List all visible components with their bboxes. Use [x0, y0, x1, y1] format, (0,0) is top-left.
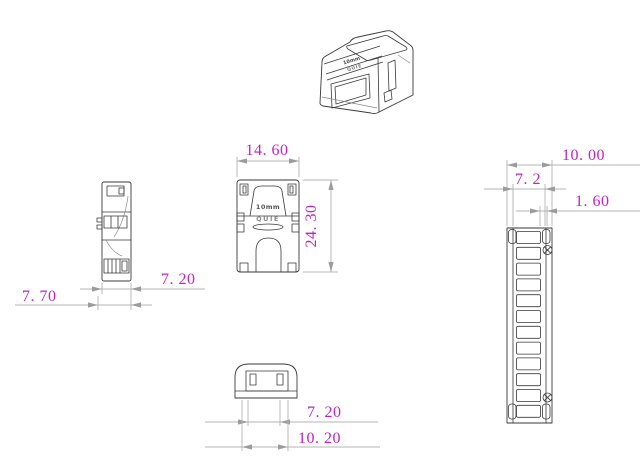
- dimension-strip-inner-width: 7. 2: [484, 171, 566, 226]
- view-bottom: 7. 20 10. 20: [205, 364, 380, 451]
- dimension-front-height: 24. 30: [303, 180, 338, 272]
- front-body: [237, 180, 299, 272]
- view-side: 7. 20 7. 70: [15, 182, 205, 310]
- dimension-bottom-outer-width: 10. 20: [205, 400, 380, 451]
- dimension-label-strip-inner-width: 7. 2: [515, 171, 541, 188]
- front-brand-marking: QUIE: [256, 215, 280, 223]
- drawing-canvas: 10mm QUIE 7. 20: [0, 0, 644, 469]
- dimension-bottom-inner-width: 7. 20: [205, 400, 378, 426]
- dimension-label-strip-outer-width: 10. 00: [562, 147, 605, 164]
- view-front: 10mm QUIE 14. 60 24. 30: [237, 142, 338, 272]
- front-size-marking: 10mm: [256, 203, 280, 211]
- side-protrusion: [97, 218, 102, 222]
- dimension-label-bottom-inner-width: 7. 20: [307, 404, 342, 421]
- dimension-label-bottom-outer-width: 10. 20: [298, 430, 341, 447]
- view-strip: 10. 00 7. 2 1. 60: [484, 147, 640, 423]
- dimension-label-strip-rail-width: 1. 60: [575, 193, 610, 210]
- dimension-front-width: 14. 60: [237, 142, 299, 177]
- dimension-label-front-width: 14. 60: [246, 142, 289, 159]
- dimension-strip-rail-width: 1. 60: [516, 193, 640, 226]
- view-perspective: 10mm QUIE: [320, 31, 413, 114]
- dimension-label-side-body-depth: 7. 20: [161, 271, 196, 288]
- dimension-label-front-height: 24. 30: [303, 205, 320, 248]
- dimension-label-side-total-depth: 7. 70: [22, 288, 57, 305]
- dimension-side-body-depth: 7. 20: [80, 271, 205, 310]
